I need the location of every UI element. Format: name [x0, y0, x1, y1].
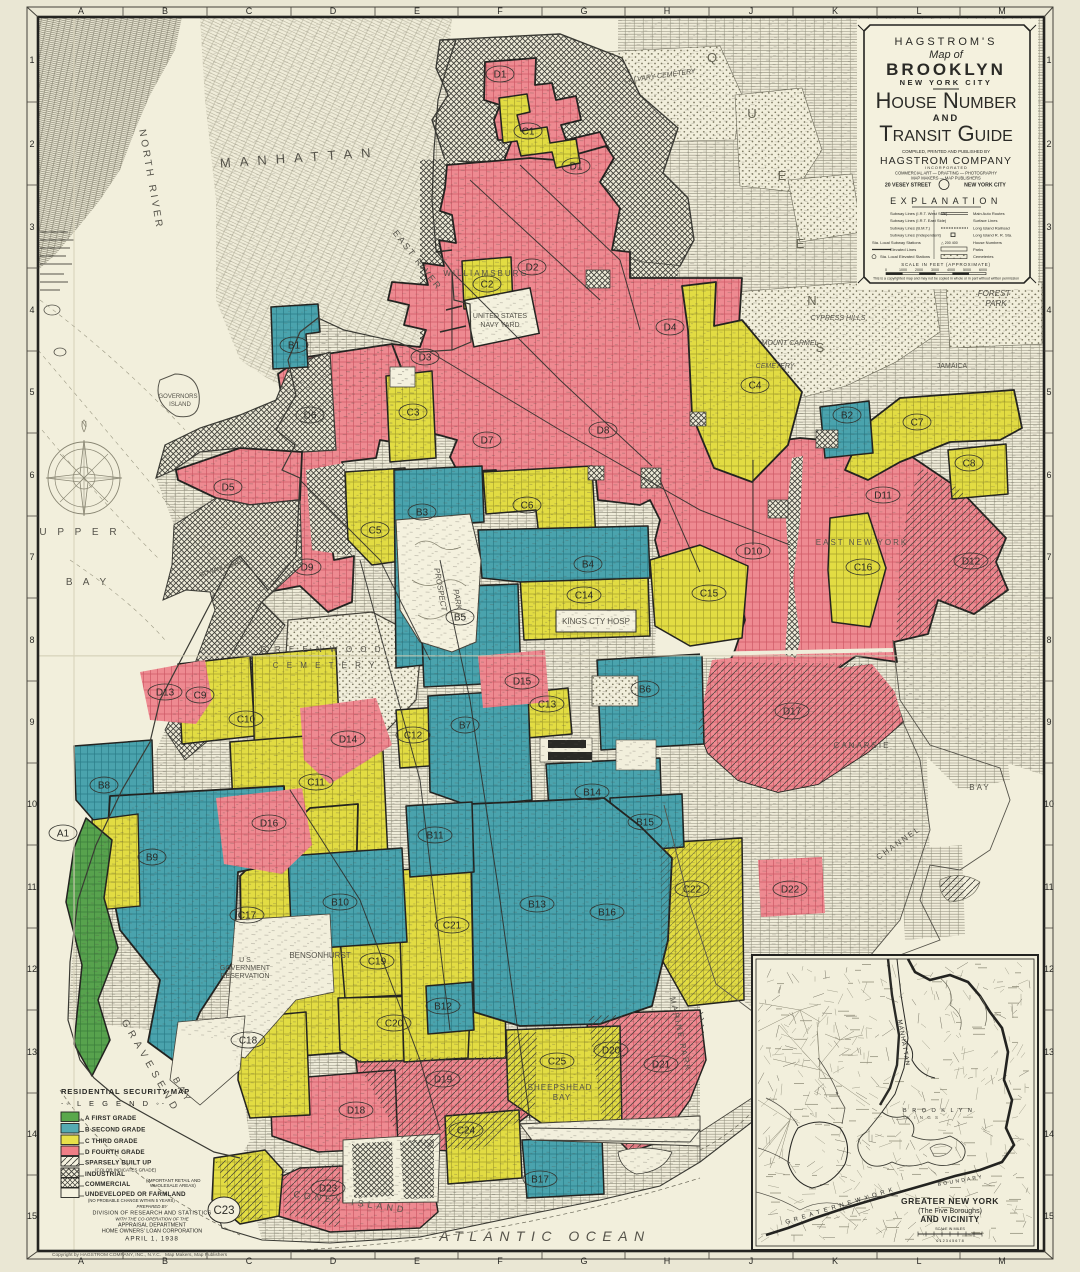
svg-text:B6: B6: [639, 685, 652, 696]
svg-text:8: 8: [29, 635, 34, 645]
svg-text:11: 11: [27, 882, 36, 892]
svg-text:C3: C3: [407, 408, 420, 419]
svg-text:I N C O R P O R A T E D: I N C O R P O R A T E D: [925, 166, 967, 170]
svg-text:SPARSELY BUILT UP: SPARSELY BUILT UP: [85, 1160, 152, 1167]
svg-text:1: 1: [1046, 55, 1051, 65]
svg-text:C8: C8: [963, 459, 976, 470]
svg-text:6: 6: [29, 470, 34, 480]
svg-text:BENSONHURST: BENSONHURST: [289, 951, 350, 960]
svg-text:S: S: [816, 340, 825, 355]
svg-text:MOUNT CARMEL: MOUNT CARMEL: [762, 340, 819, 347]
svg-text:Sta. Local Subway Statio: Sta. Local Subway Stations: [872, 240, 921, 245]
svg-text:WHOLESALE AREAS): WHOLESALE AREAS): [150, 1183, 196, 1188]
svg-text:J: J: [749, 1256, 754, 1266]
svg-text:13: 13: [27, 1047, 37, 1057]
svg-text:BAY: BAY: [969, 783, 990, 792]
svg-text:EAST NEW YORK: EAST NEW YORK: [816, 538, 908, 547]
svg-text:D12: D12: [962, 557, 981, 568]
svg-text:C THIRD GRADE: C THIRD GRADE: [85, 1138, 138, 1145]
svg-text:B R O O K L Y N: B R O O K L Y N: [903, 1108, 974, 1114]
svg-text:CEMETERY: CEMETERY: [756, 363, 796, 370]
svg-text:9: 9: [29, 717, 34, 727]
svg-text:K: K: [832, 6, 838, 16]
svg-text:C21: C21: [443, 921, 462, 932]
svg-text:D19: D19: [434, 1075, 453, 1086]
svg-text:0 1 2 3 4 5 6 7 8: 0 1 2 3 4 5 6 7 8: [936, 1239, 963, 1243]
svg-text:ISLAND: ISLAND: [169, 402, 191, 408]
svg-text:D8: D8: [597, 426, 610, 437]
svg-text:JAMAICA: JAMAICA: [937, 363, 968, 370]
svg-text:COMPILED, PRINTED AND PU: COMPILED, PRINTED AND PUBLISHED BY: [902, 149, 990, 154]
svg-text:C18: C18: [239, 1036, 258, 1047]
svg-text:D5: D5: [222, 483, 235, 494]
svg-text:EXPLANATION: EXPLANATION: [890, 196, 1002, 206]
svg-text:C6: C6: [521, 501, 534, 512]
svg-text:0: 0: [885, 268, 887, 272]
svg-text:D15: D15: [513, 677, 532, 688]
svg-text:C7: C7: [911, 418, 924, 429]
svg-text:8: 8: [1046, 635, 1051, 645]
svg-text:F: F: [497, 6, 503, 16]
svg-text:Cemeteries: Cemeteries: [973, 254, 993, 259]
svg-text:C25: C25: [548, 1057, 567, 1068]
svg-text:D13: D13: [156, 688, 175, 699]
svg-text:C12: C12: [404, 731, 423, 742]
svg-text:GOVERNMENT: GOVERNMENT: [220, 965, 271, 972]
svg-text:B15: B15: [636, 818, 654, 829]
svg-text:B4: B4: [582, 560, 595, 571]
svg-text:KINGS CTY HOSP: KINGS CTY HOSP: [562, 617, 630, 626]
svg-text:ATLANTIC OCEAN: ATLANTIC OCEAN: [438, 1228, 650, 1244]
svg-text:GOVERNORS: GOVERNORS: [158, 394, 197, 400]
svg-text:Subway Lines (I.R.T. East Sid: Subway Lines (I.R.T. East Side): [890, 218, 947, 223]
svg-text:H: H: [664, 6, 671, 16]
svg-text:C14: C14: [575, 591, 594, 602]
svg-text:C E M E T E R Y: C E M E T E R Y: [273, 661, 378, 670]
svg-text:C15: C15: [700, 589, 719, 600]
svg-text:APRIL 1, 1938: APRIL 1, 1938: [125, 1236, 179, 1243]
svg-text:C19: C19: [368, 957, 387, 968]
svg-text:B13: B13: [528, 900, 546, 911]
svg-text:D: D: [330, 1256, 337, 1266]
svg-text:U: U: [747, 106, 756, 121]
svg-text:D1: D1: [570, 162, 583, 173]
svg-text:1000: 1000: [899, 268, 907, 272]
svg-text:K I N G S: K I N G S: [907, 1115, 940, 1120]
svg-text:D10: D10: [744, 547, 763, 558]
svg-text:C9: C9: [194, 691, 207, 702]
svg-text:N: N: [81, 420, 87, 429]
svg-text:20 VESEY STREET: 20 VESEY STREET: [885, 183, 932, 189]
svg-text:M: M: [998, 1256, 1006, 1266]
svg-text:AND VICINITY: AND VICINITY: [920, 1215, 980, 1224]
svg-text:SHEEPSHEAD: SHEEPSHEAD: [528, 1083, 593, 1092]
svg-text:D1: D1: [494, 70, 507, 81]
svg-text:RESIDENTIAL SECURITY MAP: RESIDENTIAL SECURITY MAP: [61, 1087, 190, 1096]
svg-text:6: 6: [1046, 470, 1051, 480]
svg-text:E: E: [778, 168, 787, 183]
svg-text:6000: 6000: [979, 268, 987, 272]
svg-text:House Numbers: House Numbers: [973, 240, 1002, 245]
svg-text:D21: D21: [652, 1060, 671, 1071]
svg-text:B7: B7: [459, 721, 472, 732]
svg-text:B3: B3: [416, 508, 429, 519]
svg-text:INDUSTRIAL: INDUSTRIAL: [85, 1171, 125, 1178]
svg-text:C1: C1: [522, 127, 535, 138]
svg-text:GREATER NEW YORK: GREATER NEW YORK: [901, 1196, 999, 1206]
svg-text:D16: D16: [260, 819, 279, 830]
svg-text:D FOURTH GRADE: D FOURTH GRADE: [85, 1149, 145, 1156]
svg-text:G R E E N W O O D: G R E E N W O O D: [260, 645, 383, 654]
svg-text:This is a copyrighted map and: This is a copyrighted map and may not be…: [873, 277, 1019, 281]
svg-text:B SECOND GRADE: B SECOND GRADE: [85, 1127, 146, 1134]
svg-text:WITH THE CO-OPERATION OF T: WITH THE CO-OPERATION OF THE: [115, 1217, 188, 1222]
svg-text:C10: C10: [237, 715, 256, 726]
svg-text:12: 12: [27, 964, 37, 974]
svg-text:C22: C22: [683, 885, 702, 896]
svg-text:15: 15: [27, 1211, 37, 1221]
svg-text:M: M: [998, 6, 1006, 16]
svg-text:10: 10: [27, 799, 37, 809]
svg-text:C5: C5: [369, 526, 382, 537]
svg-text:B10: B10: [331, 898, 349, 909]
svg-text:H: H: [664, 1256, 671, 1266]
svg-text:WILLIAMSBURG: WILLIAMSBURG: [443, 269, 528, 278]
svg-text:B: B: [162, 6, 168, 16]
svg-text:15: 15: [1044, 1211, 1054, 1221]
svg-text:HAGSTROM'S: HAGSTROM'S: [895, 36, 998, 48]
svg-text:E: E: [796, 236, 805, 251]
svg-text:C: C: [246, 1256, 253, 1266]
svg-text:C13: C13: [538, 700, 557, 711]
svg-text:Subway Lines (B.M.T.): Subway Lines (B.M.T.): [890, 225, 931, 230]
svg-text:G: G: [580, 6, 587, 16]
svg-text:D14: D14: [339, 735, 358, 746]
svg-text:D17: D17: [783, 707, 802, 718]
svg-text:FOREST: FOREST: [978, 289, 1012, 298]
svg-text:Long Island Railroad: Long Island Railroad: [973, 225, 1010, 230]
svg-text:D18: D18: [347, 1106, 366, 1117]
svg-text:3: 3: [29, 222, 34, 232]
svg-text:(The Five Boroughs): (The Five Boroughs): [918, 1208, 982, 1215]
svg-text:B9: B9: [146, 853, 159, 864]
svg-text:B14: B14: [583, 788, 601, 799]
svg-text:2: 2: [1046, 139, 1051, 149]
svg-text:4000: 4000: [947, 268, 955, 272]
svg-text:NAVY YARD: NAVY YARD: [480, 322, 519, 329]
svg-text:B17: B17: [531, 1175, 549, 1186]
svg-text:D22: D22: [781, 885, 800, 896]
svg-text:Copyright by HAGSTROM COMPANY,: Copyright by HAGSTROM COMPANY, INC., N.Y…: [52, 1252, 228, 1258]
svg-text:4: 4: [1046, 305, 1051, 315]
svg-text:Sta. Local Elevated Stations: Sta. Local Elevated Stations: [880, 254, 930, 259]
svg-text:K: K: [832, 1256, 838, 1266]
svg-text:CANARSIE: CANARSIE: [834, 741, 891, 750]
svg-text:B8: B8: [98, 781, 111, 792]
svg-text:D7: D7: [481, 436, 494, 447]
svg-text:UNITED STATES: UNITED STATES: [473, 313, 528, 320]
svg-text:J: J: [749, 6, 754, 16]
svg-text:BROOKLYN: BROOKLYN: [886, 60, 1006, 79]
svg-text:B1: B1: [288, 341, 301, 352]
svg-text:D6: D6: [304, 411, 317, 422]
svg-text:COMMERCIAL: COMMERCIAL: [85, 1181, 130, 1188]
svg-text:A FIRST GRADE: A FIRST GRADE: [85, 1115, 136, 1122]
svg-text:4: 4: [29, 305, 34, 315]
svg-text:2000: 2000: [915, 268, 923, 272]
svg-text:B2: B2: [841, 411, 854, 422]
svg-text:9: 9: [1046, 717, 1051, 727]
svg-text:B12: B12: [434, 1002, 452, 1013]
svg-text:C17: C17: [238, 911, 257, 922]
svg-text:5000: 5000: [963, 268, 971, 272]
svg-text:C: C: [246, 6, 253, 16]
svg-text:7: 7: [29, 552, 34, 562]
svg-text:B16: B16: [598, 908, 616, 919]
svg-text:CYPRESS HILLS: CYPRESS HILLS: [811, 315, 866, 322]
svg-text:PREPARED BY: PREPARED BY: [137, 1204, 169, 1209]
svg-text:A: A: [78, 6, 84, 16]
svg-text:13: 13: [1044, 1047, 1054, 1057]
svg-text:E: E: [414, 1256, 420, 1266]
svg-text:D: D: [330, 6, 337, 16]
svg-text:NEW YORK CITY: NEW YORK CITY: [964, 183, 1006, 189]
svg-text:D4: D4: [664, 323, 677, 334]
svg-text:C16: C16: [854, 563, 873, 574]
svg-text:A1: A1: [57, 829, 70, 840]
svg-text:D3: D3: [419, 353, 432, 364]
svg-text:C20: C20: [385, 1019, 404, 1030]
svg-text:Parks: Parks: [973, 247, 983, 252]
svg-text:10: 10: [1044, 799, 1054, 809]
svg-text:C11: C11: [307, 778, 325, 789]
svg-text:SCALE IN MILES: SCALE IN MILES: [935, 1227, 965, 1231]
svg-text:L: L: [916, 6, 921, 16]
svg-text:BAY: BAY: [553, 1093, 571, 1102]
svg-text:B5: B5: [454, 613, 467, 624]
svg-text:D11: D11: [874, 491, 892, 502]
svg-text:B11: B11: [426, 831, 443, 842]
svg-text:N: N: [807, 293, 816, 308]
svg-text:△ 200 400: △ 200 400: [941, 241, 958, 245]
svg-text:Subway Lines (I.R.T. West Sid: Subway Lines (I.R.T. West Side): [890, 211, 948, 216]
svg-text:5: 5: [1046, 387, 1051, 397]
svg-text:UNDEVELOPED OR FARMLAND: UNDEVELOPED OR FARMLAND: [85, 1191, 186, 1198]
svg-text:SCALE IN FEET (APPROXIMATE: SCALE IN FEET (APPROXIMATE): [901, 262, 991, 267]
svg-text:E: E: [414, 6, 420, 16]
svg-text:⋅◦ L E G E N D ◦⋅: ⋅◦ L E G E N D ◦⋅: [61, 1099, 167, 1108]
svg-text:HOME OWNERS' LOAN CORPORATI: HOME OWNERS' LOAN CORPORATION: [102, 1229, 202, 1235]
svg-text:D9: D9: [301, 563, 314, 574]
svg-text:F: F: [497, 1256, 503, 1266]
svg-text:7: 7: [1046, 552, 1051, 562]
svg-text:Surface Lines: Surface Lines: [973, 218, 997, 223]
svg-text:2: 2: [29, 139, 34, 149]
svg-text:U S: U S: [239, 957, 251, 964]
svg-text:D20: D20: [602, 1046, 621, 1057]
svg-text:Main Auto Routes: Main Auto Routes: [973, 211, 1005, 216]
svg-text:C23: C23: [213, 1205, 234, 1217]
svg-text:14: 14: [1044, 1129, 1054, 1139]
svg-text:14: 14: [27, 1129, 37, 1139]
svg-text:12: 12: [1044, 964, 1054, 974]
svg-text:B A Y: B A Y: [66, 577, 110, 588]
svg-text:1: 1: [29, 55, 34, 65]
svg-text:U P P E R: U P P E R: [39, 527, 120, 538]
svg-text:C24: C24: [457, 1126, 476, 1137]
svg-text:RESERVATION: RESERVATION: [220, 973, 269, 980]
svg-text:11: 11: [1044, 882, 1053, 892]
svg-text:C4: C4: [749, 381, 762, 392]
svg-text:Q: Q: [707, 50, 717, 65]
svg-text:(NO PROBABLE CHANGE WITHIN: (NO PROBABLE CHANGE WITHIN 5 YEARS): [88, 1198, 175, 1203]
svg-text:Elevated Lines: Elevated Lines: [890, 247, 916, 252]
svg-text:5: 5: [29, 387, 34, 397]
svg-text:NEW YORK CITY: NEW YORK CITY: [900, 78, 993, 87]
svg-text:C2: C2: [481, 280, 494, 291]
svg-text:L: L: [916, 1256, 921, 1266]
svg-text:PARK: PARK: [985, 299, 1007, 308]
svg-text:Long Island R. R. Sta.: Long Island R. R. Sta.: [973, 233, 1012, 238]
svg-text:G: G: [580, 1256, 587, 1266]
svg-text:3: 3: [1046, 222, 1051, 232]
svg-text:3000: 3000: [931, 268, 939, 272]
